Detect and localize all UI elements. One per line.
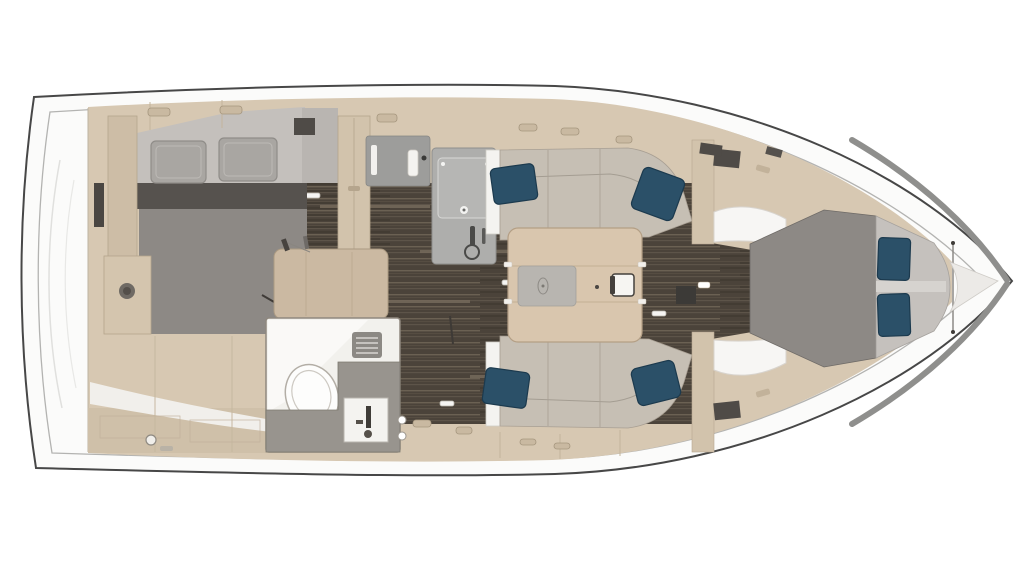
bathroom-sink	[344, 398, 388, 442]
v-berth-divider	[876, 281, 946, 292]
bulkhead-top	[692, 140, 714, 244]
aft-deck-hatch	[294, 118, 315, 135]
boat-floor-plan	[0, 0, 1024, 576]
aft-dark-locker	[94, 183, 104, 227]
door-handle	[698, 282, 710, 288]
shower-grate	[352, 332, 382, 358]
white-locker-door	[408, 150, 418, 176]
aft-pillow-right	[219, 138, 277, 181]
table-object	[610, 274, 634, 296]
starboard-sofa	[482, 336, 692, 428]
navy-pillow	[877, 237, 910, 280]
port-sofa	[490, 148, 692, 240]
aft-nightstand	[104, 256, 151, 334]
table-inset-tray	[518, 266, 576, 306]
aft-berth-headboard	[137, 183, 307, 209]
cabin-door	[676, 286, 696, 304]
navy-pillow	[877, 293, 910, 336]
bulkhead-bottom	[692, 332, 714, 452]
bow-hatch	[713, 401, 741, 421]
navy-pillow	[482, 367, 531, 409]
aft-pillow-left	[151, 141, 206, 183]
aft-side-panel	[108, 116, 137, 258]
salon-table	[504, 228, 646, 342]
bathroom	[266, 318, 406, 452]
navy-pillow	[490, 163, 539, 205]
wardrobe	[338, 116, 370, 262]
